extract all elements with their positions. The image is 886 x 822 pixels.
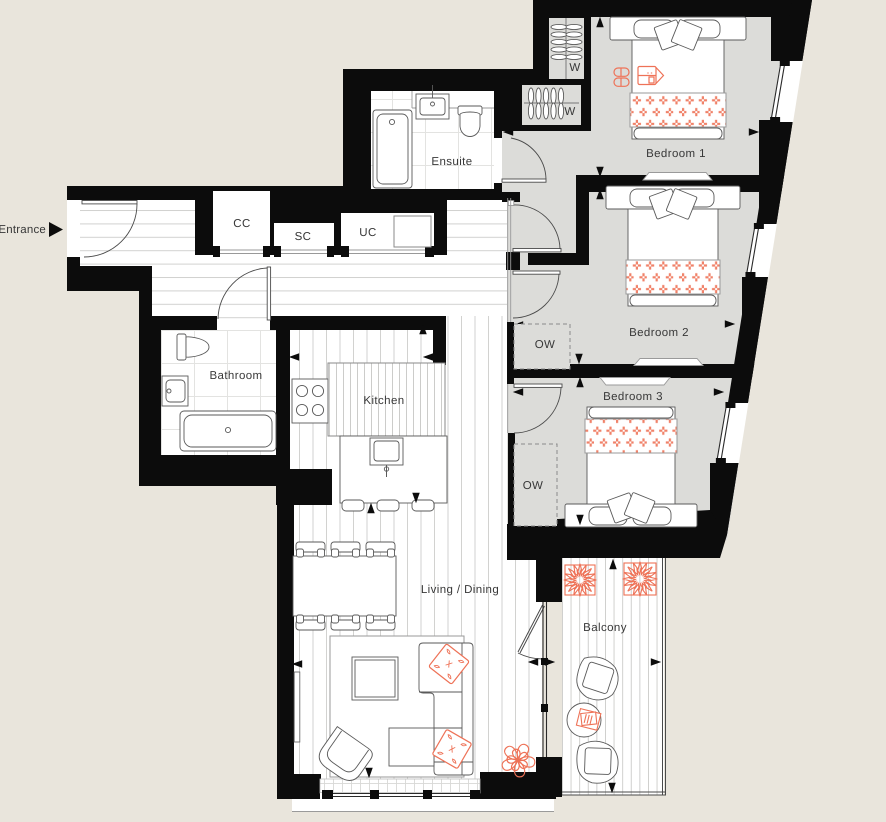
svg-text:Bathroom: Bathroom xyxy=(209,370,262,382)
svg-text:OW: OW xyxy=(535,339,556,351)
svg-text:Kitchen: Kitchen xyxy=(363,395,404,407)
svg-text:Bedroom 2: Bedroom 2 xyxy=(629,327,689,339)
svg-text:W: W xyxy=(564,106,575,118)
svg-text:Entrance: Entrance xyxy=(0,224,46,236)
svg-text:SC: SC xyxy=(295,231,312,243)
svg-text:OW: OW xyxy=(523,480,544,492)
svg-text:Ensuite: Ensuite xyxy=(431,156,472,168)
svg-text:CC: CC xyxy=(233,218,250,230)
svg-text:W: W xyxy=(569,62,580,74)
svg-text:Balcony: Balcony xyxy=(583,622,627,634)
svg-text:UC: UC xyxy=(359,227,376,239)
svg-text:Bedroom 3: Bedroom 3 xyxy=(603,391,663,403)
svg-text:Bedroom 1: Bedroom 1 xyxy=(646,148,706,160)
svg-text:Living / Dining: Living / Dining xyxy=(421,584,499,596)
